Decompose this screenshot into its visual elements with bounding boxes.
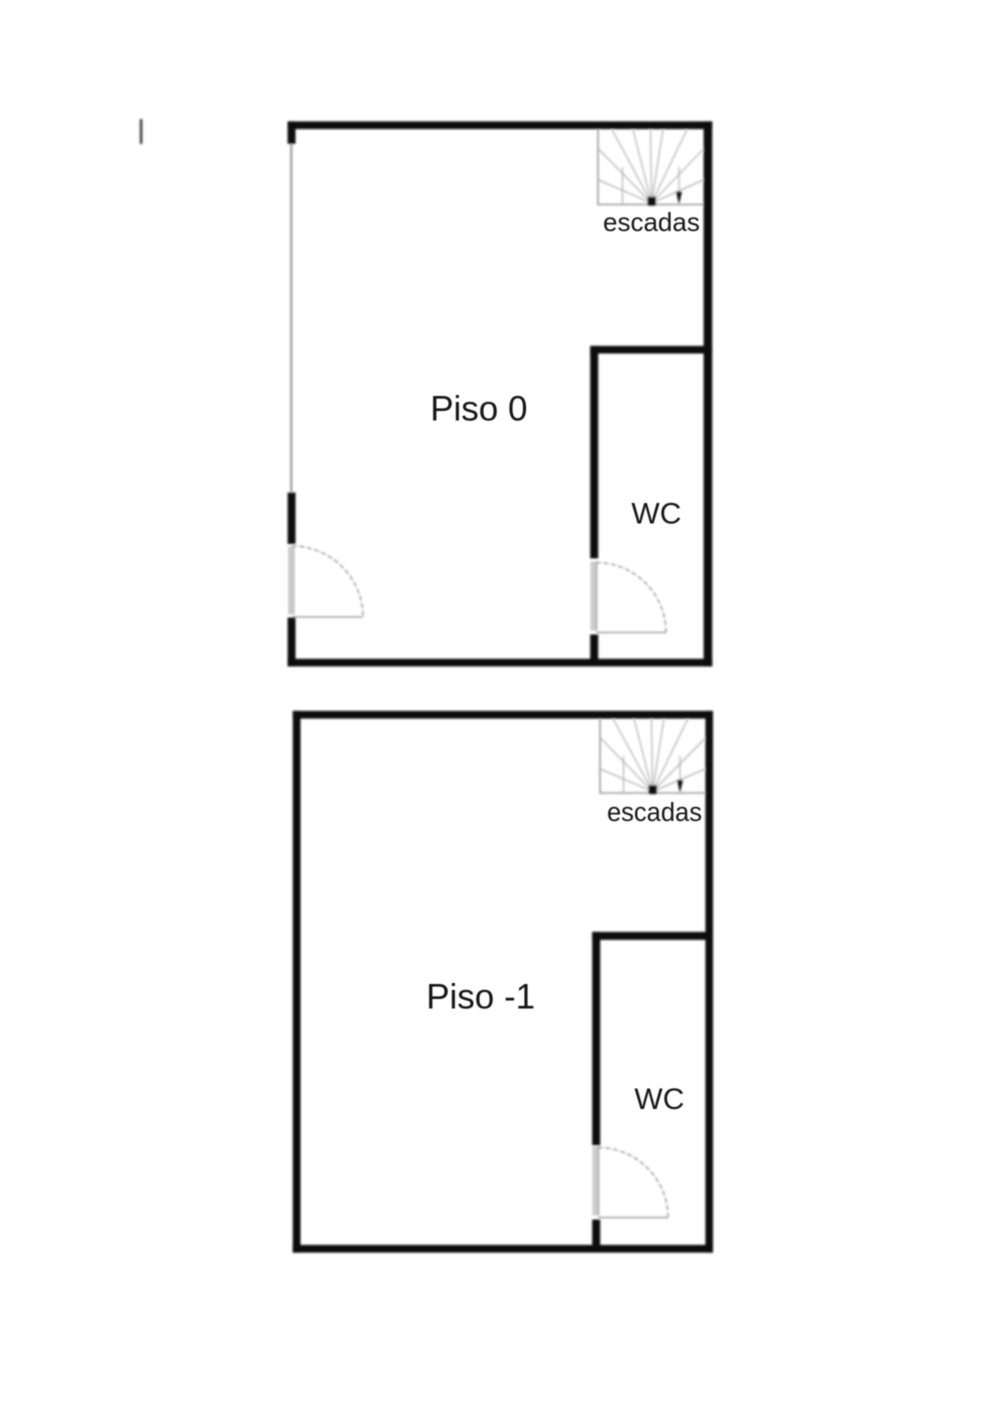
svg-text:escadas: escadas <box>607 799 702 827</box>
svg-text:Piso -1: Piso -1 <box>426 978 535 1017</box>
svg-text:Piso 0: Piso 0 <box>430 390 527 429</box>
svg-text:WC: WC <box>631 498 681 531</box>
svg-text:WC: WC <box>634 1083 684 1116</box>
svg-text:escadas: escadas <box>603 207 700 237</box>
